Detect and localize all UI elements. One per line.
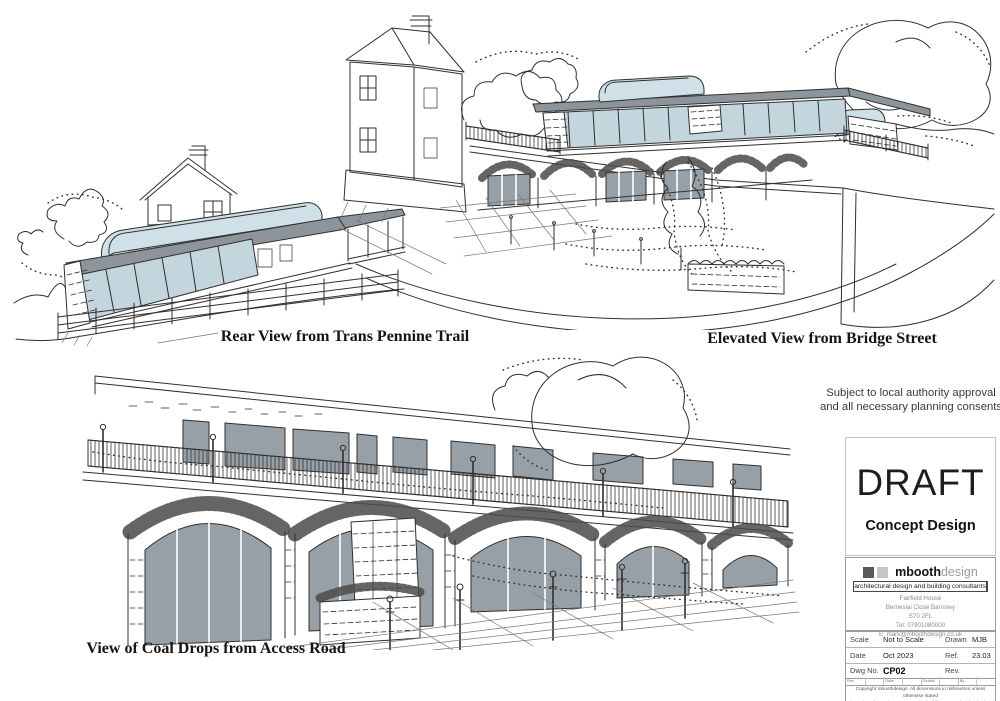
dwg-no-label: Dwg No. <box>846 664 879 678</box>
drawing-sheet: Rear View from Trans Pennine Trail <box>0 0 1000 701</box>
title-block: DRAFT Concept Design mboothdesign archit… <box>845 437 996 701</box>
logo-square-dark-icon <box>863 567 874 578</box>
firm-name-light: design <box>941 565 978 579</box>
ref-value: 23.03 <box>968 648 995 662</box>
elevated-view-sketch <box>336 12 996 330</box>
table-row: Scale Not to Scale Drawn MJB <box>846 632 995 647</box>
revision-strip-cell <box>976 677 995 685</box>
stage-label: Concept Design <box>846 518 995 534</box>
coal-drops-caption: View of Coal Drops from Access Road <box>66 640 366 658</box>
ref-label: Ref. <box>941 648 968 662</box>
drawn-label: Drawn <box>941 632 968 647</box>
date-value: Oct 2023 <box>879 648 941 662</box>
revision-strip-label: Date <box>883 677 902 685</box>
firm-name: mboothdesign <box>895 565 978 579</box>
rev-value <box>968 664 995 678</box>
revision-strip-label: Details <box>921 677 940 685</box>
firm-name-bold: mbooth <box>895 565 941 579</box>
drawn-value: MJB <box>968 632 995 647</box>
scale-label: Scale <box>846 632 879 647</box>
revision-strip-cell <box>939 677 958 685</box>
status-label: DRAFT <box>846 462 995 504</box>
revision-strip-cell <box>902 677 921 685</box>
rev-label: Rev. <box>941 664 968 678</box>
scale-value: Not to Scale <box>879 632 941 647</box>
date-label: Date <box>846 648 879 662</box>
revision-strip-label: By <box>958 677 977 685</box>
copyright-line: Copyright mboothdesign. All dimensions i… <box>846 686 995 700</box>
elevated-view-caption-text: Elevated View from Bridge Street <box>707 330 937 347</box>
copyright-note: Copyright mboothdesign. All dimensions i… <box>845 685 996 701</box>
logo-square-light-icon <box>877 567 888 578</box>
draft-box: DRAFT Concept Design <box>845 437 996 556</box>
rear-view-caption-text: Rear View from Trans Pennine Trail <box>221 328 469 345</box>
revision-strip-label: Rev <box>846 677 865 685</box>
address-line: S70 2FL <box>846 613 995 622</box>
coal-drops-caption-text: View of Coal Drops from Access Road <box>86 640 345 657</box>
firm-tagline: architectural design and building consul… <box>853 581 988 592</box>
rear-view-caption: Rear View from Trans Pennine Trail <box>195 328 495 346</box>
coal-drops-sketch <box>33 350 823 650</box>
address-line: Tel: 07901080000 <box>846 622 995 631</box>
address-line: Berneslai Close Barnsley <box>846 604 995 613</box>
table-row: Date Oct 2023 Ref. 23.03 <box>846 647 995 662</box>
dwg-no-value: CP02 <box>879 664 941 678</box>
firm-logo-box: mboothdesign architectural design and bu… <box>845 557 996 631</box>
address-line: Fairfield House <box>846 595 995 604</box>
approval-note: Subject to local authority approval and … <box>818 386 1000 415</box>
table-row: Dwg No. CP02 Rev. <box>846 663 995 678</box>
revision-strip-cell <box>865 677 884 685</box>
elevated-view-caption: Elevated View from Bridge Street <box>672 330 972 348</box>
info-table: Scale Not to Scale Drawn MJB Date Oct 20… <box>845 631 996 679</box>
